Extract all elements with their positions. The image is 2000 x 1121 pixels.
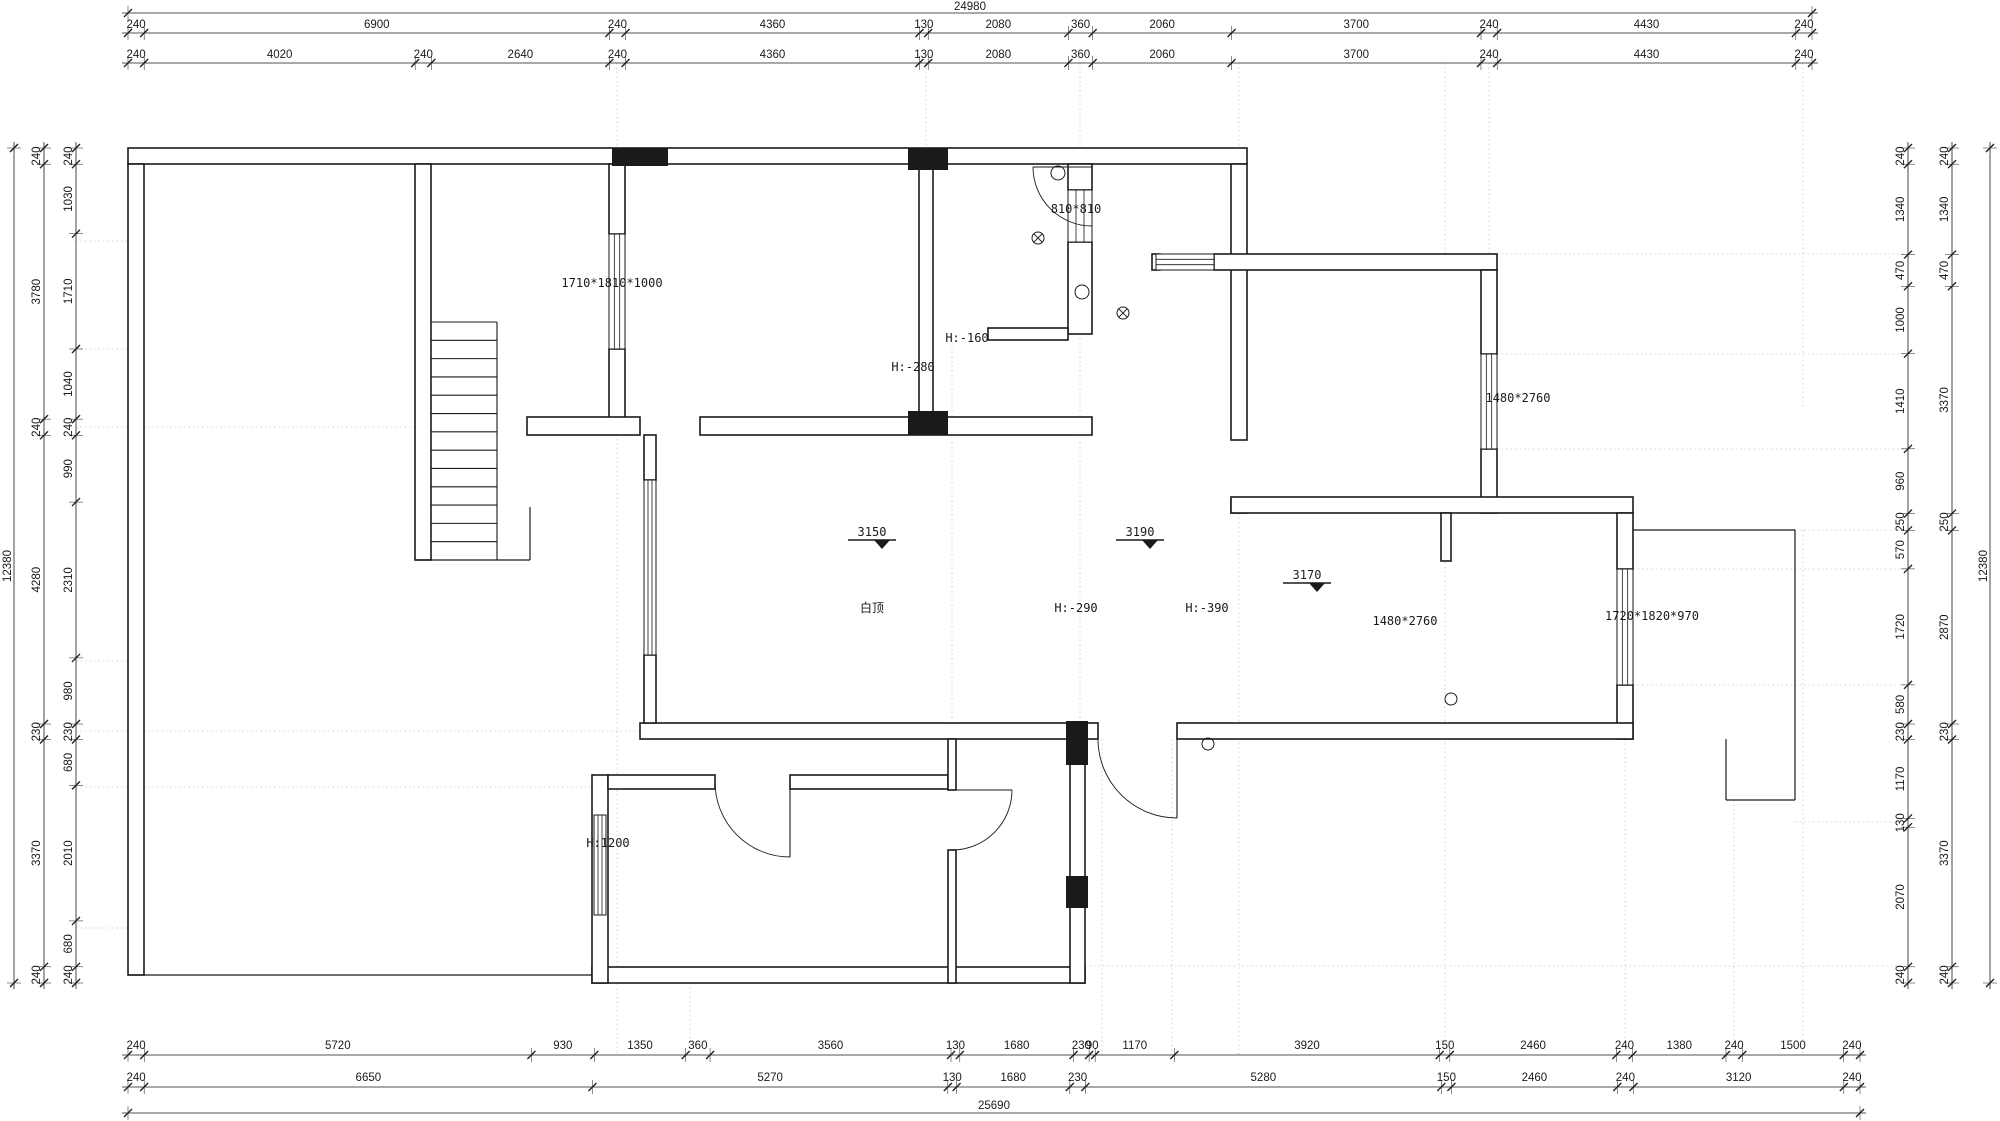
dim-value: 2460	[1522, 1072, 1548, 1084]
dim-value: 1410	[1895, 388, 1907, 414]
wall-segment	[640, 723, 1098, 739]
dim-value: 240	[126, 1072, 145, 1084]
dim-value: 240	[608, 49, 627, 61]
dim-value: 240	[1794, 19, 1813, 31]
wall-segment	[609, 349, 625, 419]
dim-value: 5720	[325, 1040, 351, 1052]
dim-value: 230	[1895, 722, 1907, 741]
dim-value: 130	[943, 1072, 962, 1084]
dim-value: 3700	[1343, 19, 1369, 31]
dim-value: 250	[1939, 512, 1951, 531]
dim-value: 4020	[267, 49, 293, 61]
wall-segment	[592, 967, 1085, 983]
dim-value: 130	[914, 19, 933, 31]
wall-segment	[128, 164, 144, 975]
dim-value: 2060	[1149, 19, 1175, 31]
wall-segment	[1441, 513, 1451, 561]
annotation-text: H:1200	[586, 836, 629, 850]
wall-segment	[128, 148, 1247, 164]
window	[644, 480, 656, 655]
dim-value: 3370	[1939, 387, 1951, 413]
dim-value: 1340	[1939, 197, 1951, 223]
dim-value: 150	[1437, 1072, 1456, 1084]
window	[1068, 190, 1092, 242]
column	[908, 148, 948, 170]
wall-segment	[1214, 254, 1497, 270]
dim-value: 240	[63, 146, 75, 165]
wall-segment	[948, 850, 956, 983]
annotation-text: 1720*1820*970	[1605, 609, 1699, 623]
annotation-text: H:-280	[891, 360, 934, 374]
dim-value: 3780	[31, 279, 43, 305]
wall-segment	[1068, 164, 1092, 190]
dim-value: 360	[688, 1040, 707, 1052]
dim-value: 240	[1895, 146, 1907, 165]
dim-value: 930	[553, 1040, 572, 1052]
dim-value: 240	[414, 49, 433, 61]
window-frame	[594, 815, 606, 915]
dim-value: 240	[1479, 19, 1498, 31]
dim-value: 130	[1895, 813, 1907, 832]
dim-value: 6650	[356, 1072, 382, 1084]
dim-value: 1380	[1666, 1040, 1692, 1052]
dim-value: 240	[1842, 1040, 1861, 1052]
dim-value: 2010	[63, 840, 75, 866]
annotation-text: 810*810	[1051, 202, 1102, 216]
dim-value: 360	[1071, 49, 1090, 61]
dim-value: 4360	[760, 19, 786, 31]
dim-value: 3370	[31, 840, 43, 866]
wall-segment	[1070, 739, 1085, 983]
wall-segment	[415, 164, 431, 560]
dim-value: 240	[126, 49, 145, 61]
dim-value: 980	[63, 681, 75, 700]
wall-segment	[608, 775, 715, 789]
dim-value: 130	[946, 1040, 965, 1052]
dim-value: 2070	[1895, 884, 1907, 910]
annotation-text: H:-290	[1054, 601, 1097, 615]
dim-value: 240	[1842, 1072, 1861, 1084]
dim-value: 1030	[63, 186, 75, 212]
window	[609, 234, 625, 349]
wall-segment	[1177, 723, 1633, 739]
dim-value: 2310	[63, 567, 75, 593]
dim-value: 130	[914, 49, 933, 61]
dim-value: 240	[127, 1040, 146, 1052]
floor-plan-canvas: 24980 25690 12380 12380 2406900240436013…	[0, 0, 2000, 1121]
dim-value: 240	[31, 418, 43, 437]
dim-value: 4430	[1634, 19, 1660, 31]
dim-value: 1720	[1895, 614, 1907, 640]
dim-value: 3120	[1726, 1072, 1752, 1084]
dim-value: 240	[63, 965, 75, 984]
window	[594, 815, 606, 915]
column	[1066, 876, 1088, 908]
column	[908, 411, 948, 435]
window-frame	[1068, 190, 1092, 242]
dim-value: 230	[63, 722, 75, 741]
column	[1066, 721, 1088, 765]
annotation-text: 1710*1810*1000	[561, 276, 662, 290]
dim-value: 240	[1895, 965, 1907, 984]
window-frame	[1617, 569, 1633, 685]
dim-value: 240	[1479, 49, 1498, 61]
dim-value: 4430	[1634, 49, 1660, 61]
dim-value: 5280	[1251, 1072, 1277, 1084]
dim-value: 1040	[63, 371, 75, 397]
dim-value: 230	[1068, 1072, 1087, 1084]
dim-value: 4280	[31, 567, 43, 593]
dim-value: 240	[608, 19, 627, 31]
wall-segment	[988, 328, 1068, 340]
total-left: 12380	[2, 550, 14, 582]
wall-segment	[1617, 513, 1633, 569]
dim-value: 1000	[1895, 307, 1907, 333]
annotation-text: 1480*2760	[1485, 391, 1550, 405]
dim-value: 150	[1435, 1040, 1454, 1052]
dim-value: 470	[1939, 261, 1951, 280]
window-frame	[609, 234, 625, 349]
wall-segment	[1231, 164, 1247, 440]
wall-segment	[919, 164, 933, 417]
window-frame	[1156, 254, 1214, 270]
dim-value: 1500	[1780, 1040, 1806, 1052]
dim-value: 470	[1895, 261, 1907, 280]
dim-value: 3560	[818, 1040, 844, 1052]
wall-segment	[527, 417, 640, 435]
dim-value: 240	[63, 418, 75, 437]
annotation-text: H:-390	[1185, 601, 1228, 615]
paper-background	[0, 0, 2000, 1121]
dim-value: 230	[31, 722, 43, 741]
dim-value: 1350	[627, 1040, 653, 1052]
dim-value: 240	[1725, 1040, 1744, 1052]
dim-value: 2640	[508, 49, 534, 61]
dim-value: 240	[1615, 1040, 1634, 1052]
window	[1617, 569, 1633, 685]
dim-value: 90	[1086, 1040, 1099, 1052]
dim-value: 580	[1895, 695, 1907, 714]
level-value: 3150	[858, 525, 887, 539]
level-value: 3190	[1126, 525, 1155, 539]
level-value: 3170	[1293, 568, 1322, 582]
annotation-text: 1480*2760	[1372, 614, 1437, 628]
dim-value: 240	[1939, 146, 1951, 165]
dim-value: 2460	[1520, 1040, 1546, 1052]
dim-value: 2080	[986, 49, 1012, 61]
annotation-text: 白顶	[860, 600, 884, 615]
dim-value: 240	[1939, 965, 1951, 984]
dim-value: 240	[31, 965, 43, 984]
window	[1156, 254, 1214, 270]
total-top: 24980	[954, 1, 986, 13]
annotation-text: H:-160	[945, 331, 988, 345]
dim-value: 4360	[760, 49, 786, 61]
dim-value: 570	[1895, 540, 1907, 559]
column	[612, 148, 668, 166]
dim-value: 1170	[1895, 767, 1907, 792]
dim-value: 360	[1071, 19, 1090, 31]
dim-value: 960	[1895, 472, 1907, 491]
dim-value: 3920	[1294, 1040, 1320, 1052]
wall-segment	[1068, 242, 1092, 334]
dim-value: 2870	[1939, 614, 1951, 640]
dim-value: 3700	[1343, 49, 1369, 61]
total-bottom: 25690	[978, 1100, 1010, 1112]
wall-segment	[700, 417, 1092, 435]
wall-segment	[644, 435, 656, 480]
dim-value: 680	[63, 934, 75, 953]
dim-value: 230	[1939, 722, 1951, 741]
dim-value: 1710	[63, 279, 75, 305]
wall-segment	[948, 739, 956, 790]
dim-value: 2060	[1149, 49, 1175, 61]
total-right: 12380	[1978, 550, 1990, 582]
dim-value: 240	[126, 19, 145, 31]
dim-value: 2080	[986, 19, 1012, 31]
dim-value: 250	[1895, 512, 1907, 531]
dim-value: 1340	[1895, 197, 1907, 223]
dim-value: 680	[63, 753, 75, 772]
dim-value: 240	[31, 146, 43, 165]
dim-value: 6900	[364, 19, 390, 31]
dim-value: 240	[1794, 49, 1813, 61]
window-frame	[644, 480, 656, 655]
wall-segment	[790, 775, 948, 789]
wall-segment	[644, 655, 656, 723]
dim-value: 3370	[1939, 840, 1951, 866]
dim-value: 1680	[1000, 1072, 1026, 1084]
dim-value: 990	[63, 459, 75, 478]
dim-value: 1680	[1004, 1040, 1030, 1052]
wall-segment	[1231, 497, 1633, 513]
dim-value: 1170	[1122, 1040, 1147, 1052]
dim-value: 5270	[757, 1072, 783, 1084]
wall-segment	[609, 164, 625, 234]
wall-segment	[1481, 270, 1497, 354]
dim-value: 240	[1616, 1072, 1635, 1084]
